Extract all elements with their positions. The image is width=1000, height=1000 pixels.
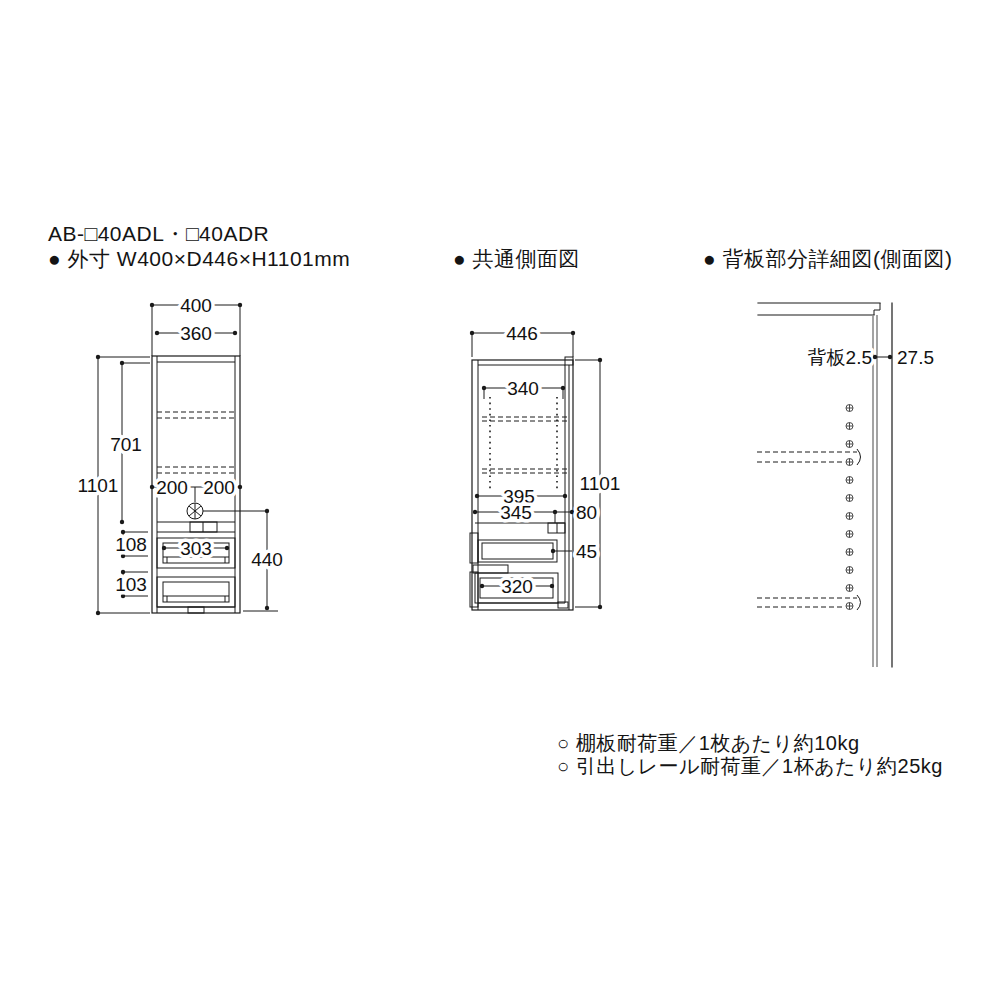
shelf-pin-holes [846, 405, 853, 610]
dim-front-height-total: 1101 [78, 475, 119, 496]
dim-drawer-inner-width: 303 [180, 538, 212, 559]
dim-drawer1-front-height: 108 [115, 534, 147, 555]
diagram-canvas: 400 360 1101 701 108 [0, 0, 1000, 1000]
dim-wall-gap: 27.5 [897, 347, 934, 368]
dim-rail-depth: 345 [500, 502, 532, 523]
dim-hook-height: 440 [251, 549, 283, 570]
dim-front-upper-height: 701 [110, 434, 142, 455]
dim-side-depth: 446 [506, 323, 538, 344]
dim-half-width-right: 200 [203, 477, 235, 498]
side-view-diagram: 446 1101 340 395 345 [470, 323, 621, 611]
front-view-diagram: 400 360 1101 701 108 [78, 295, 283, 616]
dim-pin-span: 340 [507, 378, 539, 399]
dim-side-height-total: 1101 [580, 473, 621, 494]
dim-drawer2-front-height: 103 [115, 574, 147, 595]
dim-half-width-left: 200 [156, 477, 188, 498]
drawing-sheet: AB-□40ADL・□40ADR ● 外寸 W400×D446×H1101mm … [0, 0, 1000, 1000]
hook-position-symbol [187, 503, 203, 519]
dim-back-gap: 80 [576, 502, 597, 523]
dim-drawer-depth: 320 [501, 576, 533, 597]
back-panel-detail-diagram: 背板2.5 27.5 [757, 303, 934, 667]
dim-front-width-inner: 360 [180, 323, 212, 344]
dim-rail-height: 45 [576, 541, 597, 562]
back-panel-label: 背板2.5 [808, 347, 872, 368]
dim-front-width-outer: 400 [180, 295, 212, 316]
